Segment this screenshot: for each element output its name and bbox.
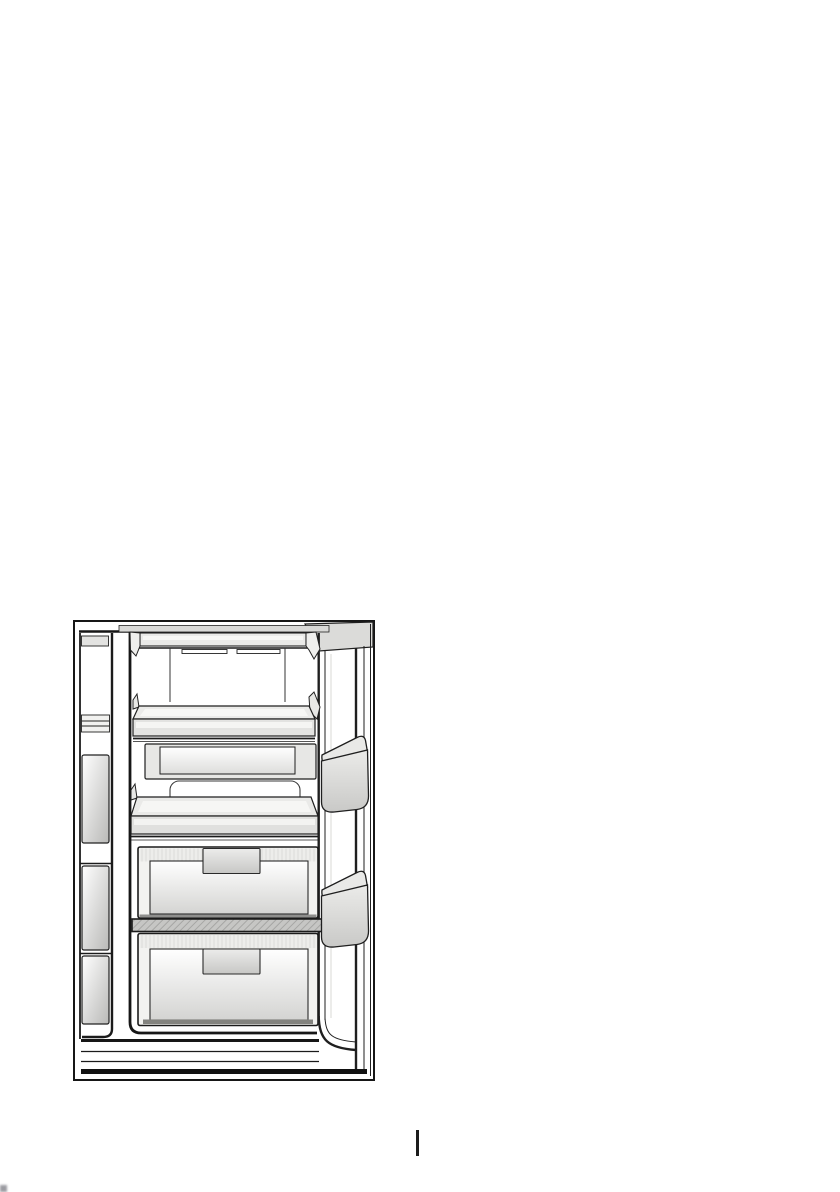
freezer-interior-figure bbox=[73, 620, 375, 1081]
side-bin-1 bbox=[82, 755, 109, 843]
upper-freezer-drawer bbox=[138, 847, 318, 918]
upper-drawer-handle bbox=[203, 849, 260, 874]
lower-freezer-drawer bbox=[138, 934, 318, 1026]
side-bin-3 bbox=[82, 956, 109, 1024]
footer-page-divider bbox=[416, 1130, 419, 1156]
corner-print-artifact bbox=[0, 1185, 7, 1192]
lower-drawer-handle bbox=[203, 949, 260, 974]
side-bin-2 bbox=[82, 866, 109, 950]
icematic-tray bbox=[145, 744, 316, 779]
divider-shelf bbox=[132, 919, 323, 932]
manual-page bbox=[0, 0, 840, 1192]
freezer-interior-illustration bbox=[73, 620, 375, 1081]
